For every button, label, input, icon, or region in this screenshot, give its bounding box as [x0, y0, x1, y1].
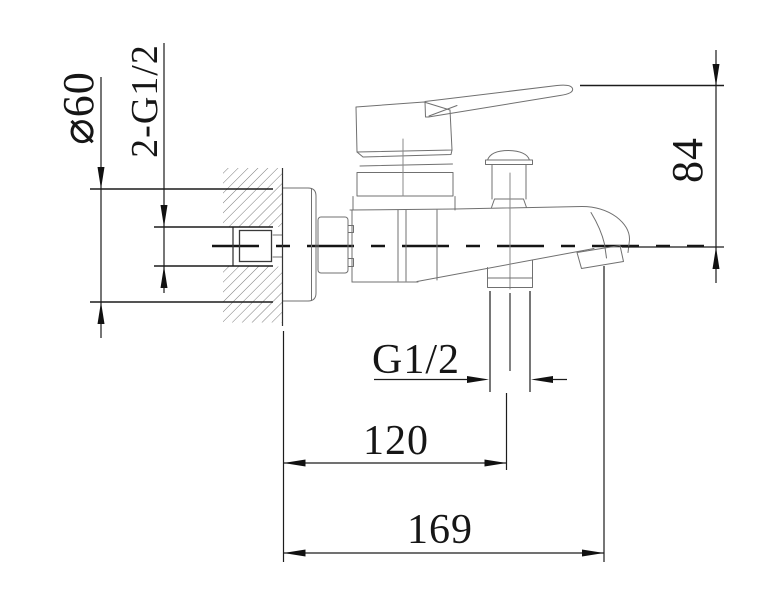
dim-label-height-84: 84 — [664, 80, 712, 240]
dim-label-wall-to-outlet: 120 — [316, 417, 476, 465]
technical-drawing-page: ⌀60 2-G1/2 84 G1/2 120 169 — [0, 0, 767, 600]
wall-flange — [283, 188, 317, 301]
spout-tip-outlet — [577, 246, 624, 269]
handle-lever — [425, 85, 573, 117]
spout-underside — [417, 249, 594, 282]
dim-label-wall-to-spout-tip: 169 — [360, 506, 520, 554]
handle-cap — [356, 102, 452, 152]
diverter-knob — [486, 151, 533, 208]
faucet-outline — [273, 85, 630, 301]
dim-label-inlet-thread: 2-G1/2 — [121, 21, 169, 181]
spout-top-contour — [350, 207, 630, 253]
cartridge-collar — [357, 173, 453, 197]
dim-label-outlet-thread: G1/2 — [336, 336, 496, 384]
dimension-lines — [90, 43, 724, 562]
dim-label-flange-diameter: ⌀60 — [55, 28, 103, 188]
dimension-arrows — [98, 64, 720, 557]
